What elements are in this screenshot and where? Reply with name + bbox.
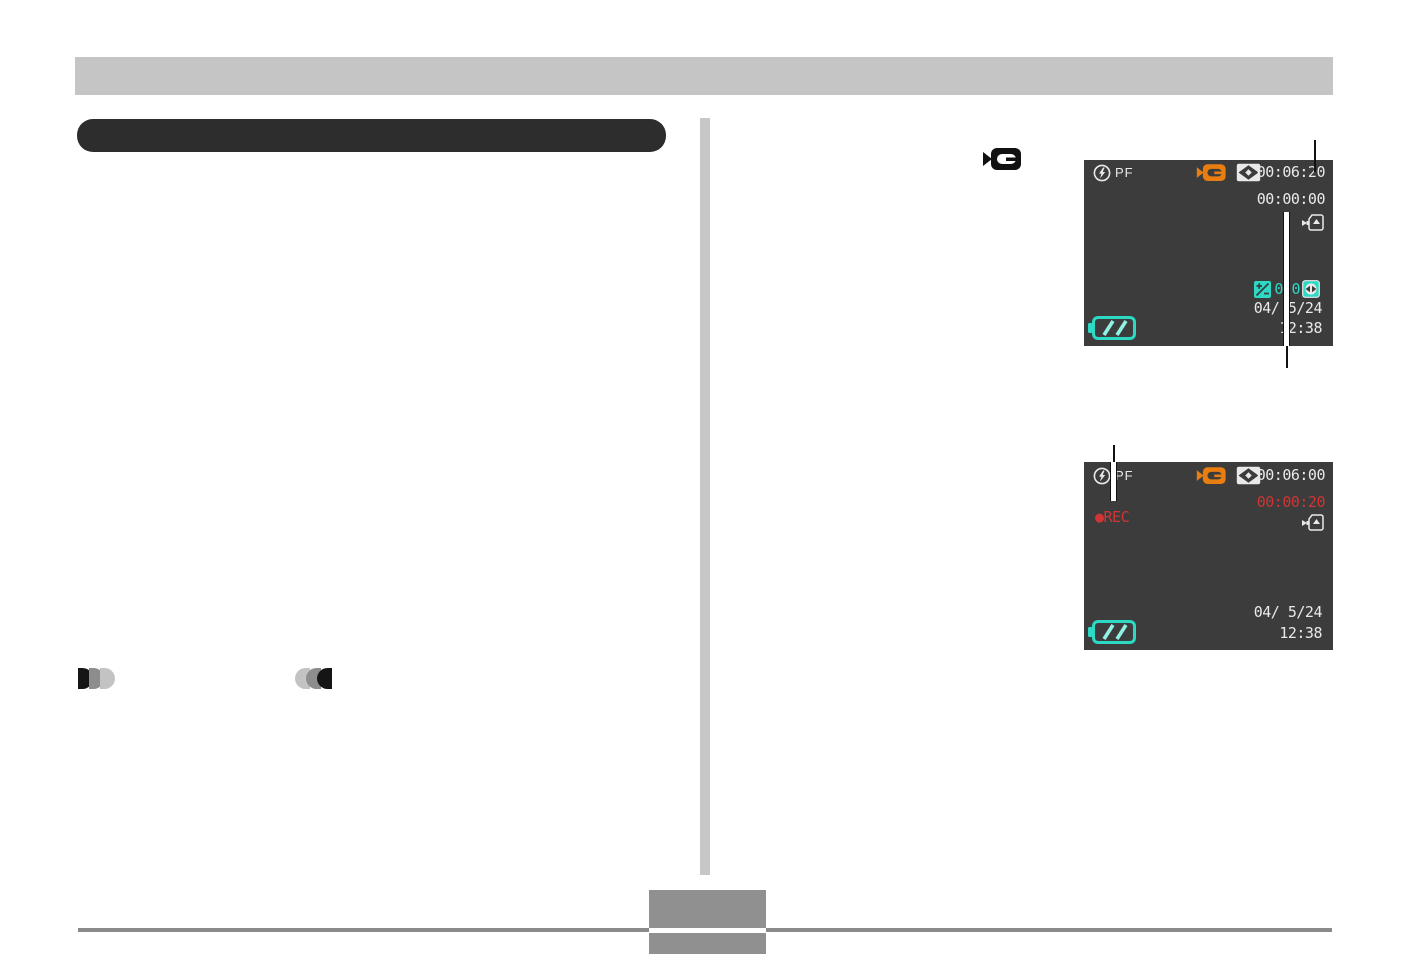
fade-out-icon: [295, 668, 332, 689]
elapsed-time: 00:00:00: [1257, 191, 1325, 208]
section-heading-bar: [77, 119, 666, 152]
column-divider: [700, 118, 710, 875]
flash-mode-icon: [1093, 467, 1111, 485]
disc-light: [100, 668, 115, 689]
movie-icon: [1196, 465, 1228, 487]
movie-mode-icon: [983, 145, 1023, 174]
focus-mode-label: PF: [1115, 468, 1134, 483]
flash-mode-icon: [1093, 164, 1111, 182]
ev-shift-icon: [1254, 281, 1271, 298]
elapsed-time-recording: 00:00:20: [1257, 494, 1325, 511]
footer-rule-right: [766, 928, 1332, 932]
fade-in-icon: [78, 668, 115, 689]
footer-rule-left: [78, 928, 649, 932]
battery-icon: [1088, 620, 1136, 644]
movie-icon: [1196, 162, 1228, 184]
callout-line-rec: [1110, 462, 1117, 501]
focus-mode-label: PF: [1115, 165, 1134, 180]
callout-line-rec-head: [1113, 445, 1115, 462]
remaining-time: 00:06:00: [1257, 467, 1325, 484]
page-number-box-lower: [649, 933, 766, 954]
page-number-box: [649, 890, 766, 928]
callout-line-elapsed-time: [1283, 212, 1290, 346]
date-display: 04/ 5/24: [1254, 604, 1322, 621]
lcd-screen-standby: PF 00:06:20 00:00:00: [1084, 160, 1333, 346]
header-bar: [75, 57, 1333, 95]
time-display: 12:38: [1279, 625, 1322, 642]
contrast-icon: [1302, 280, 1320, 298]
rec-indicator: ●REC: [1095, 509, 1129, 526]
card-save-icon: [1302, 512, 1326, 533]
callout-line-remaining-time: [1314, 140, 1316, 172]
battery-icon: [1088, 316, 1136, 340]
disc-dark: [317, 668, 332, 689]
callout-line-elapsed-time-tail: [1286, 346, 1288, 368]
card-save-icon: [1302, 212, 1326, 233]
lcd-screen-recording: PF 00:06:00 00:00:20 ●REC 04/ 5/24 12:38: [1084, 462, 1333, 650]
